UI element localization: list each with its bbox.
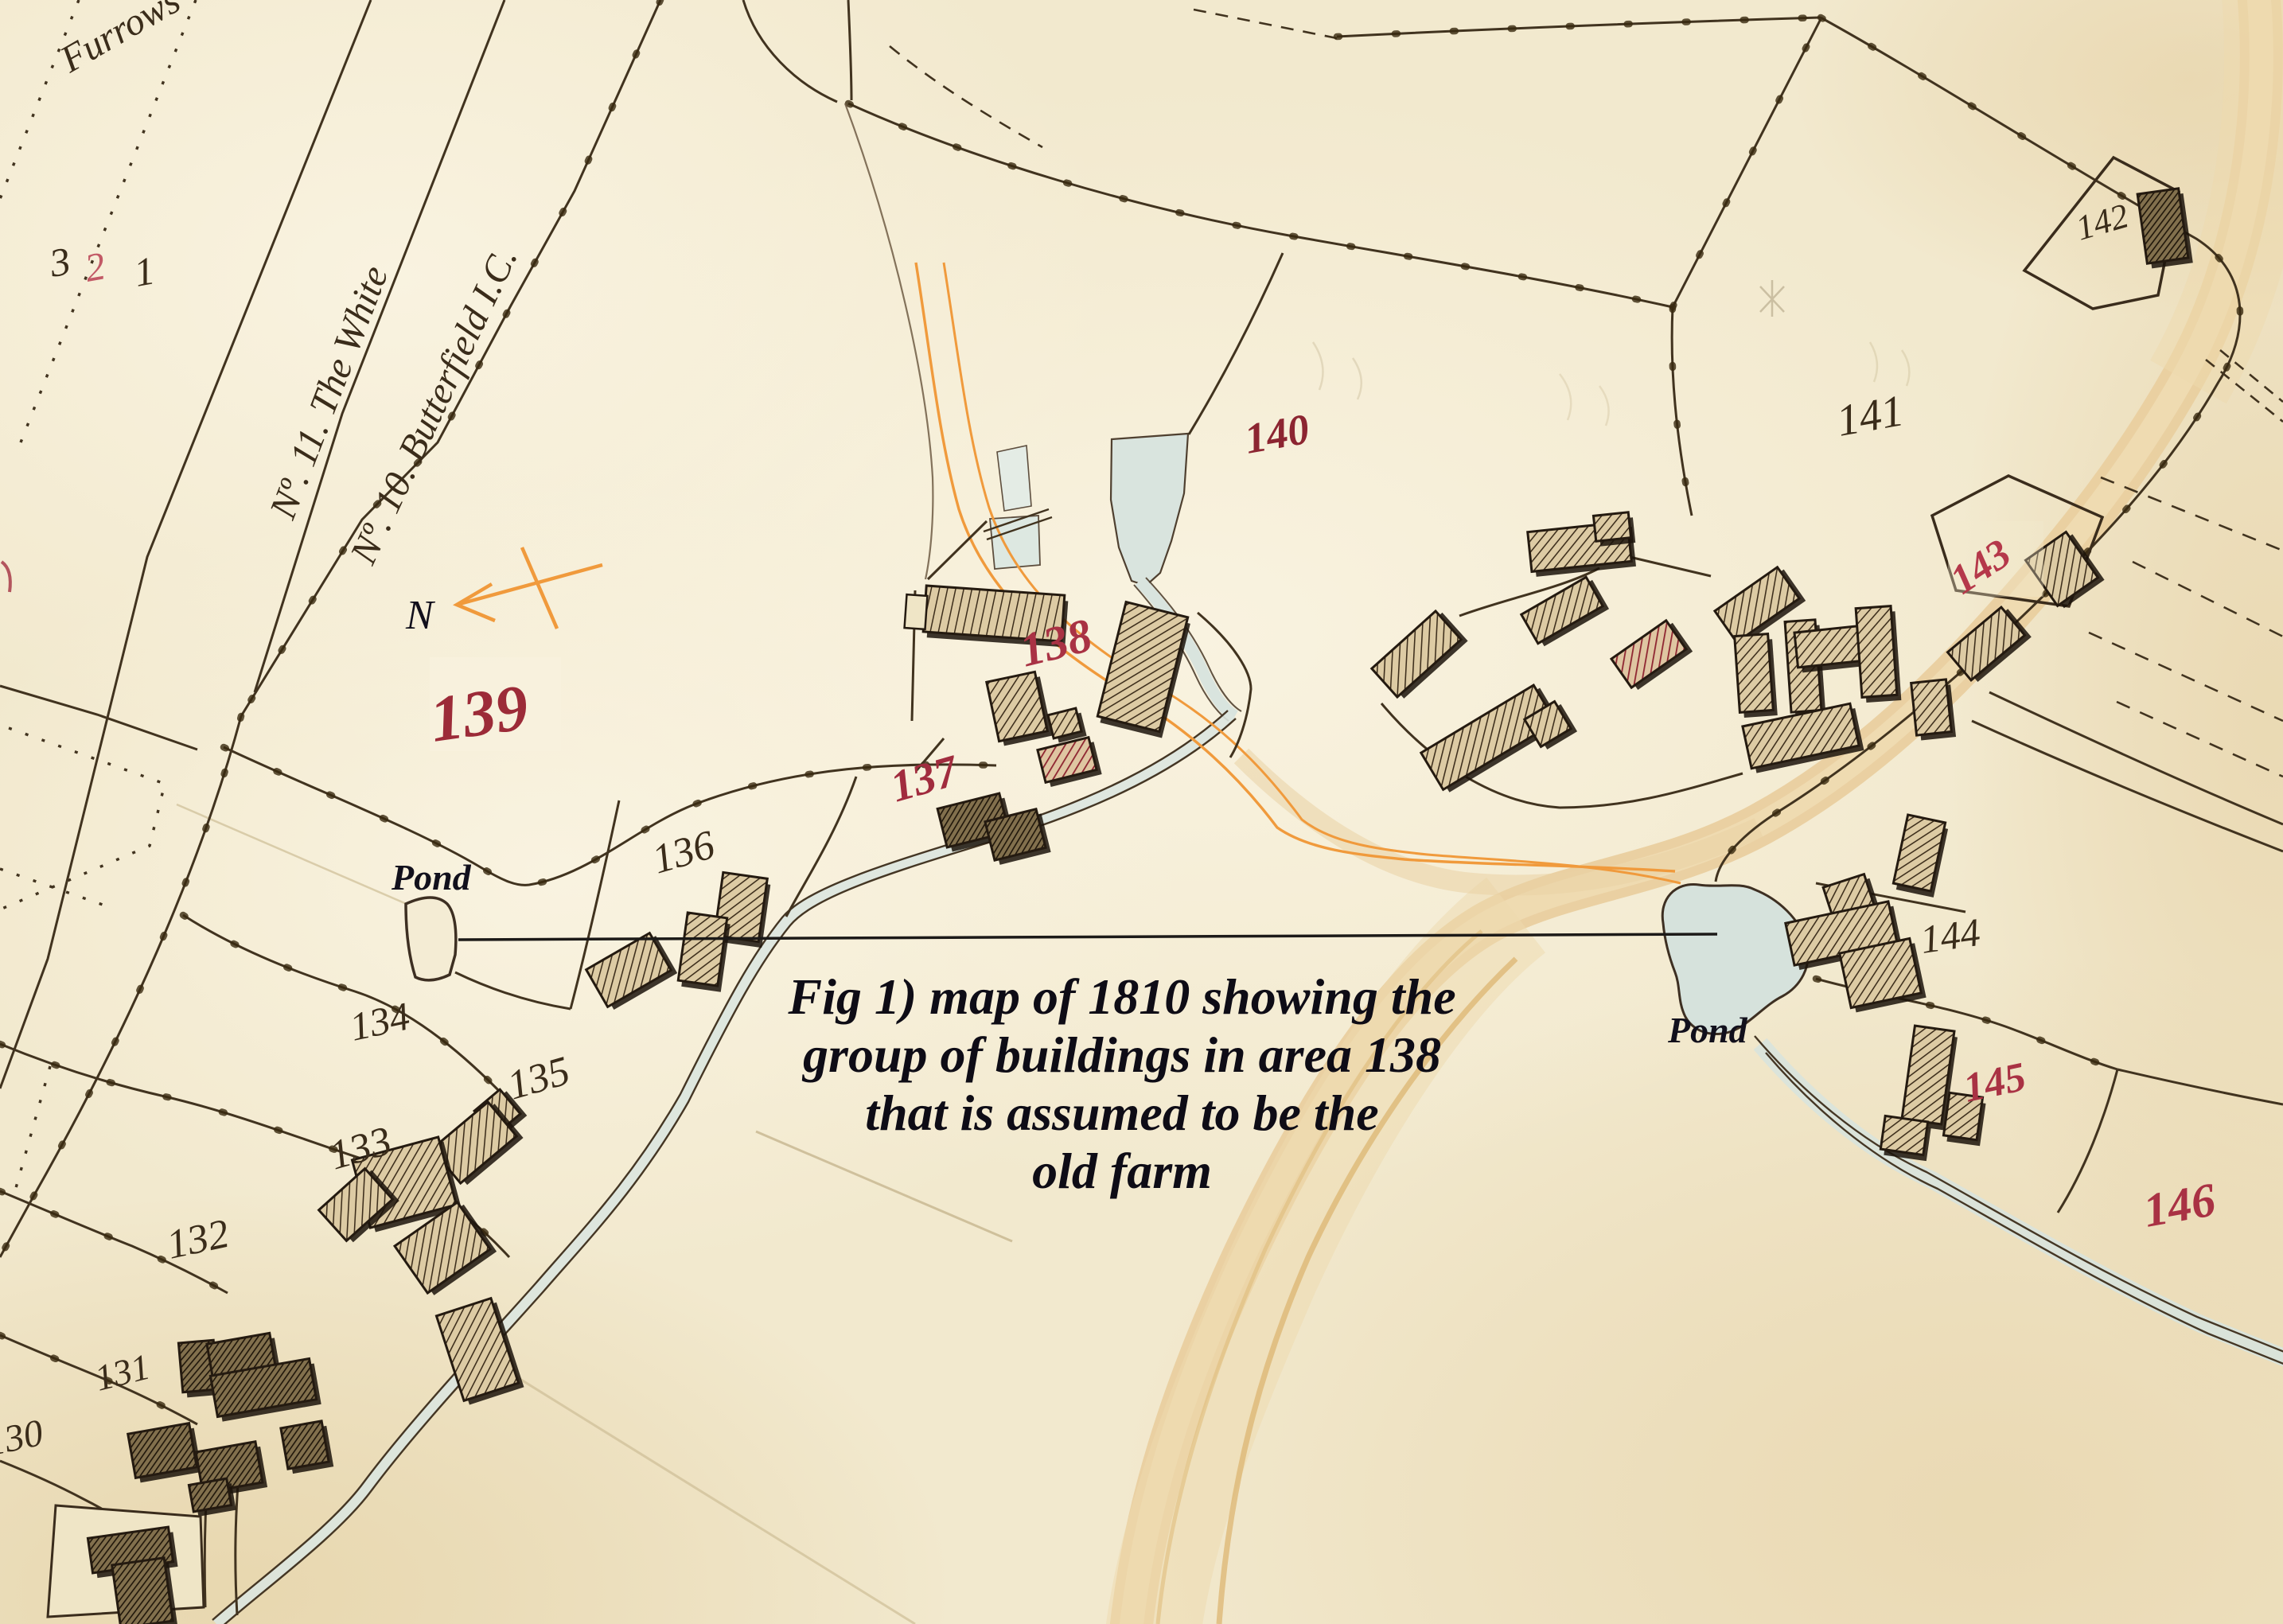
- svg-text:144: 144: [1918, 909, 1983, 962]
- svg-text:Fig 1) map of 1810 showing the: Fig 1) map of 1810 showing the: [787, 968, 1455, 1025]
- svg-text:old farm: old farm: [1032, 1143, 1212, 1199]
- svg-text:Pond: Pond: [391, 857, 472, 898]
- svg-text:N: N: [405, 593, 436, 638]
- svg-text:139: 139: [426, 671, 532, 756]
- svg-text:Pond: Pond: [1667, 1010, 1748, 1050]
- svg-text:that is assumed to be the: that is assumed to be the: [865, 1085, 1378, 1141]
- svg-text:group of buildings in area 138: group of buildings in area 138: [801, 1026, 1441, 1083]
